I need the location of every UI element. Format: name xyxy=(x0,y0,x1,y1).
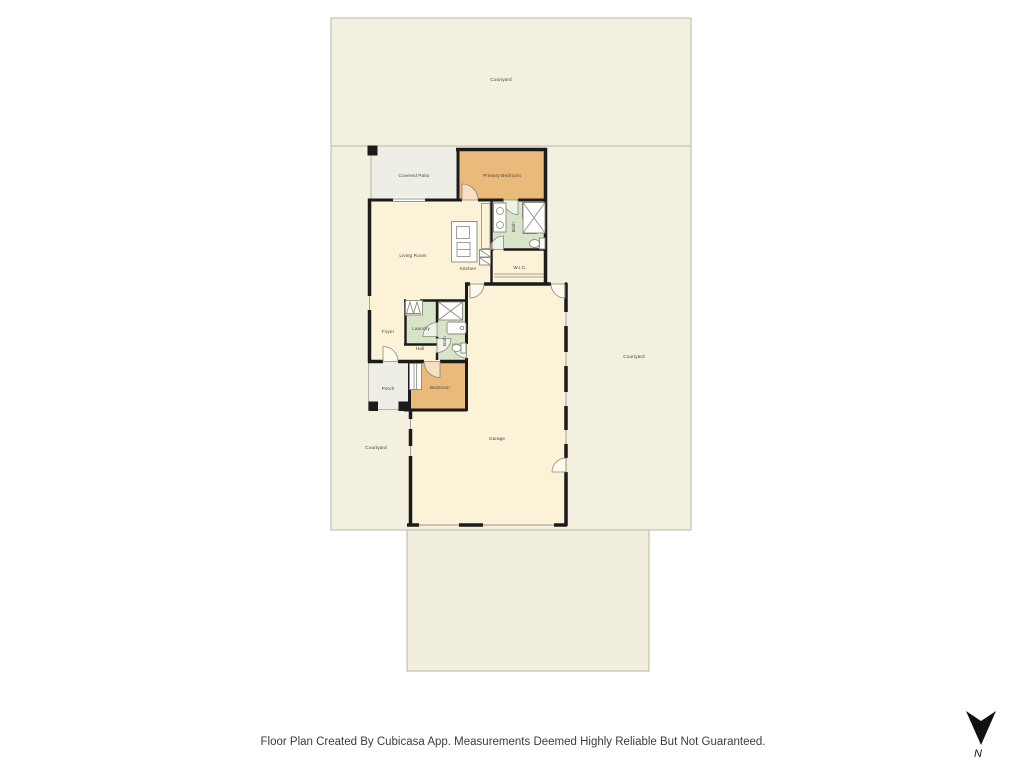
floor-plan-canvas: Courtyard Courtyard Courtyard Covered Pa… xyxy=(0,0,1024,768)
label-courtyard-left: Courtyard xyxy=(365,445,387,450)
sliding-door-icon xyxy=(393,198,425,203)
north-arrow-icon xyxy=(966,711,996,745)
bathtub-icon xyxy=(447,322,466,334)
label-kitchen: Kitchen xyxy=(460,266,477,271)
vanity-sink-icon xyxy=(494,203,507,232)
label-bedroom: Bedroom xyxy=(430,385,450,390)
porch-post-right xyxy=(399,402,409,412)
label-primary-bedroom: Primary Bedroom xyxy=(483,173,521,178)
label-foyer: Foyer xyxy=(382,329,395,334)
label-wic: W.I.C. xyxy=(513,265,526,270)
label-covered-patio: Covered Patio xyxy=(398,173,429,178)
label-laundry: Laundry xyxy=(412,326,430,331)
shower-icon xyxy=(523,203,545,234)
closet-bifold-icon xyxy=(406,301,423,316)
porch-post-left xyxy=(369,402,379,412)
label-primary-bath: Bath xyxy=(511,222,516,232)
toilet2-icon xyxy=(452,343,466,353)
label-courtyard-right: Courtyard xyxy=(623,354,645,359)
toilet-icon xyxy=(530,238,546,249)
driveway-area xyxy=(407,530,649,671)
north-label: N xyxy=(974,748,982,760)
label-courtyard-top: Courtyard xyxy=(490,77,512,82)
patio-post xyxy=(368,146,378,156)
label-hall: Hall xyxy=(416,346,424,351)
label-living-room: Living Room xyxy=(399,253,426,258)
label-porch: Porch xyxy=(382,386,395,391)
label-garage: Garage xyxy=(489,436,506,441)
kitchen-island-icon xyxy=(452,222,478,263)
linen-closet-icon xyxy=(439,302,463,320)
footer-disclaimer: Floor Plan Created By Cubicasa App. Meas… xyxy=(261,736,766,748)
bedroom-closet-rod-icon xyxy=(410,364,422,390)
floor-plan-page: Courtyard Courtyard Courtyard Covered Pa… xyxy=(0,0,1024,768)
north-compass: N xyxy=(966,711,996,760)
label-hall-bath: Bath xyxy=(442,336,447,346)
